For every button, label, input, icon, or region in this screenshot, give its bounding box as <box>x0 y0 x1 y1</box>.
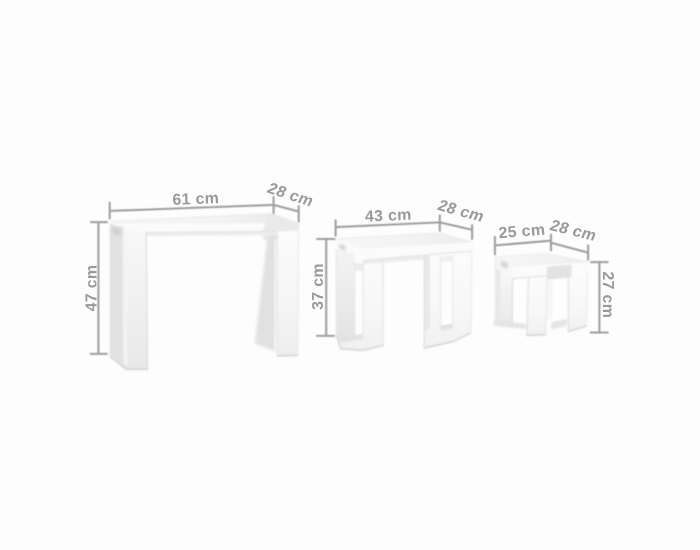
svg-text:47 cm: 47 cm <box>83 265 100 312</box>
svg-text:43 cm: 43 cm <box>365 207 412 226</box>
svg-text:37 cm: 37 cm <box>310 263 327 310</box>
svg-text:61 cm: 61 cm <box>172 190 219 209</box>
svg-text:27 cm: 27 cm <box>599 271 616 318</box>
